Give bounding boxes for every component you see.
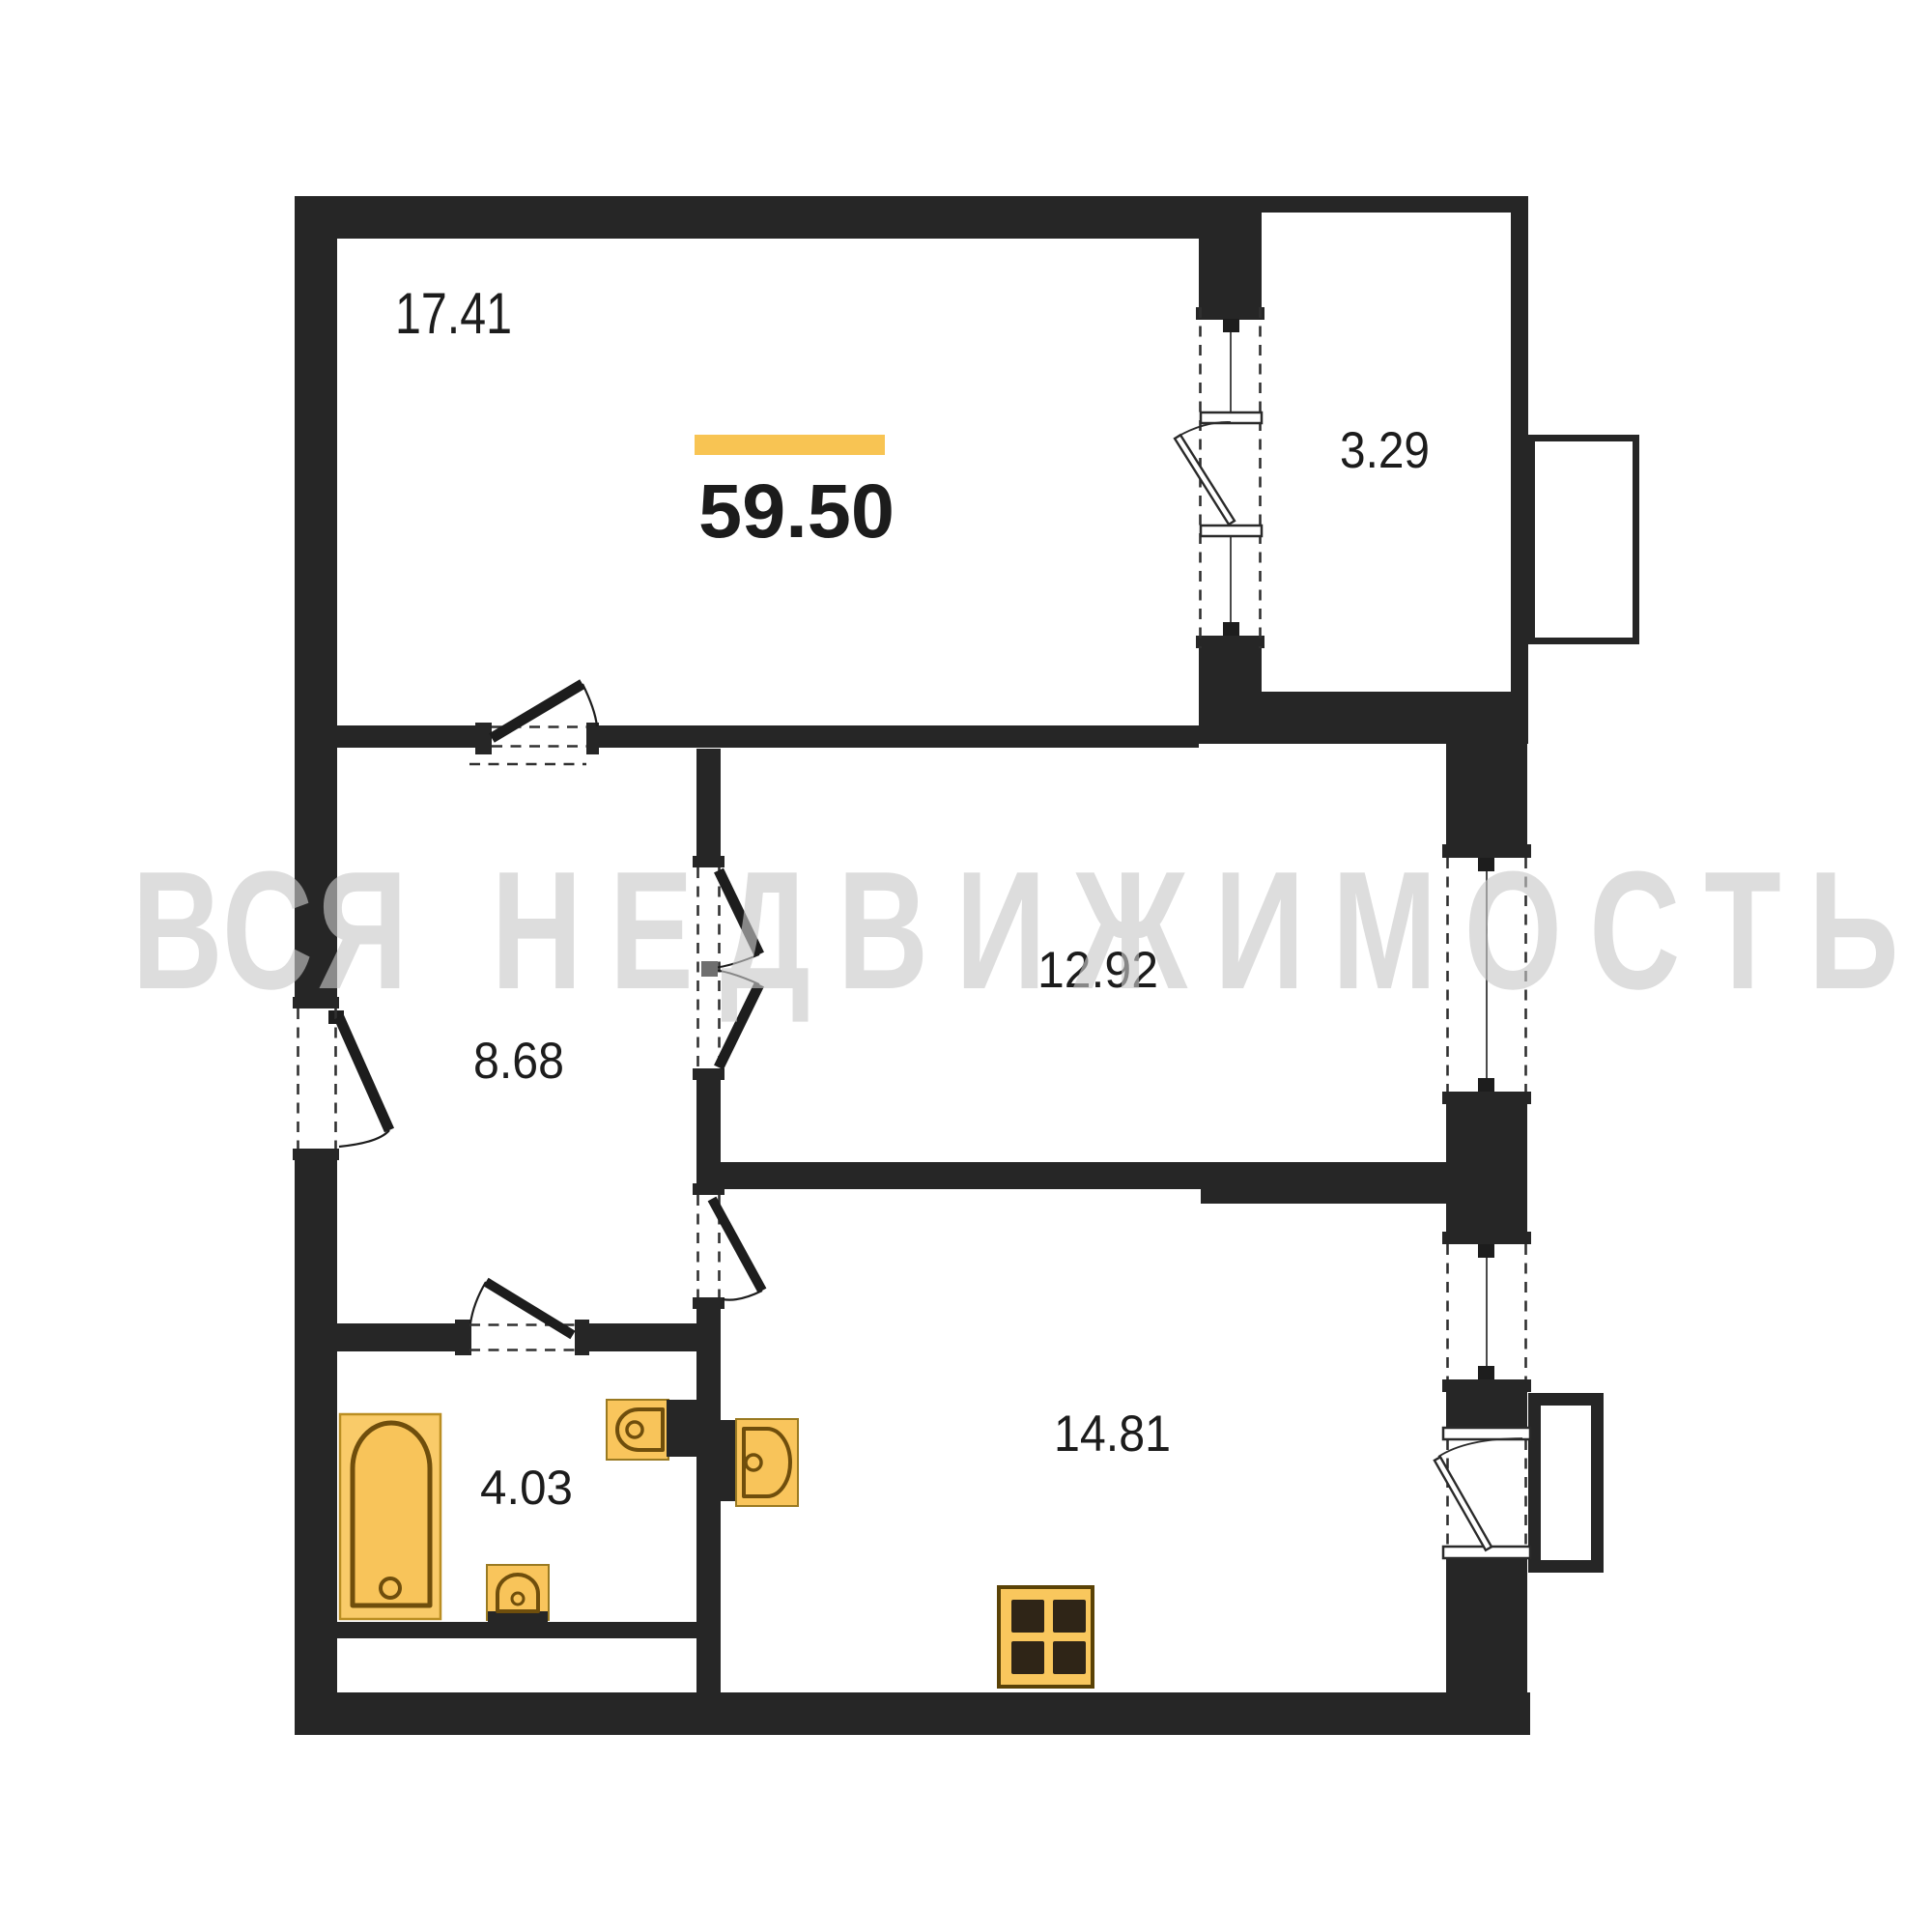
svg-text:ВСЯ: ВСЯ <box>132 837 412 1025</box>
svg-text:НЕДВИЖИМОСТЬ: НЕДВИЖИМОСТЬ <box>492 837 1926 1025</box>
svg-text:4.03: 4.03 <box>480 1461 573 1515</box>
svg-text:8.68: 8.68 <box>473 1033 564 1090</box>
svg-text:17.41: 17.41 <box>395 281 512 346</box>
svg-text:3.29: 3.29 <box>1340 422 1430 479</box>
svg-text:14.81: 14.81 <box>1054 1406 1171 1463</box>
svg-text:59.50: 59.50 <box>698 468 895 554</box>
